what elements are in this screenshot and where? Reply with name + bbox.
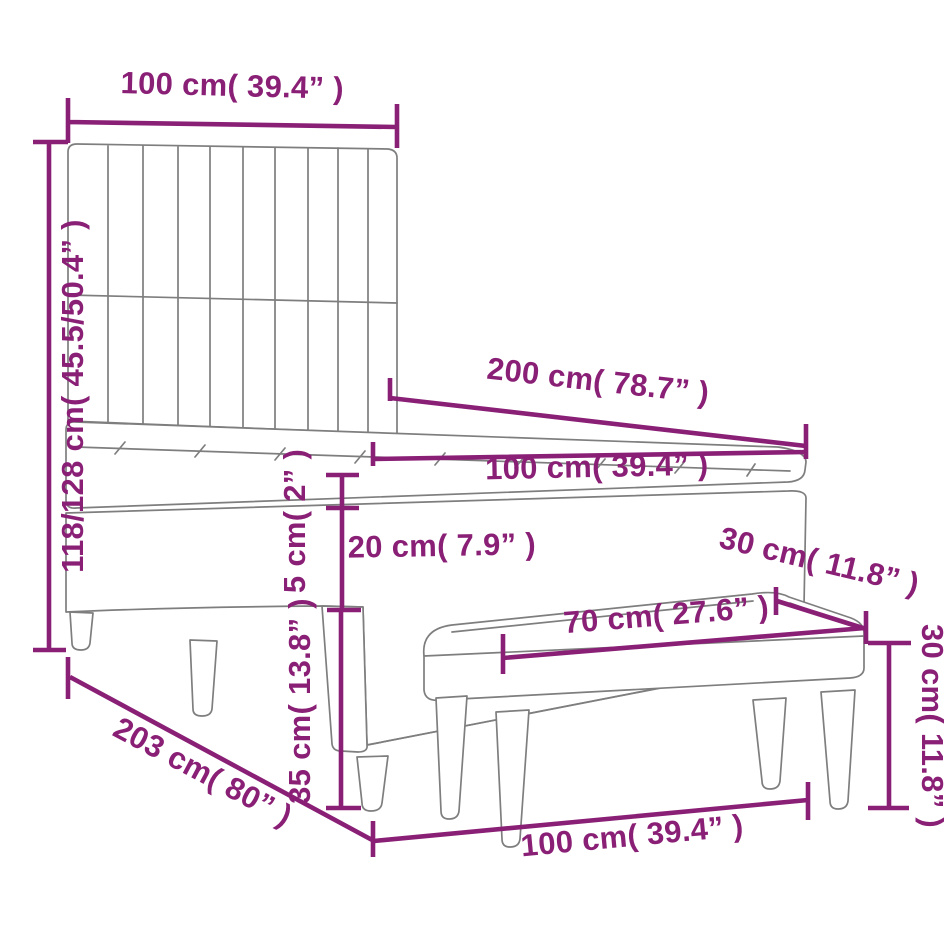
dim-bottom-width: 100 cm( 39.4” ) [374,782,808,863]
dimension-diagram: 100 cm( 39.4” ) 118/128 cm( 45.5/50.4” )… [0,0,947,947]
dim-topper-thickness-label: 5 cm( 2” ) [277,449,312,593]
dim-bench-height-label: 30 cm( 11.8” ) [915,624,947,828]
dim-bed-width-label: 100 cm( 39.4” ) [485,447,709,487]
dim-headboard-width: 100 cm( 39.4” ) [68,65,397,148]
dim-mattress-thickness: 20 cm( 7.9” ) [347,526,536,564]
dim-headboard-height-label: 118/128 cm( 45.5/50.4” ) [55,219,90,573]
headboard [68,144,397,434]
dim-total-length-label: 203 cm( 80” ) [108,710,298,833]
dim-bed-length: 200 cm( 78.7” ) [390,351,806,446]
diagram-canvas: 100 cm( 39.4” ) 118/128 cm( 45.5/50.4” )… [0,0,947,947]
dim-mattress-thickness-label: 20 cm( 7.9” ) [347,526,536,564]
dim-bench-height: 30 cm( 11.8” ) [868,624,947,828]
dim-headboard-width-label: 100 cm( 39.4” ) [120,65,344,106]
dim-base-height-label: 35 cm( 13.8” ) [282,598,317,804]
dim-bed-length-label: 200 cm( 78.7” ) [485,351,711,411]
